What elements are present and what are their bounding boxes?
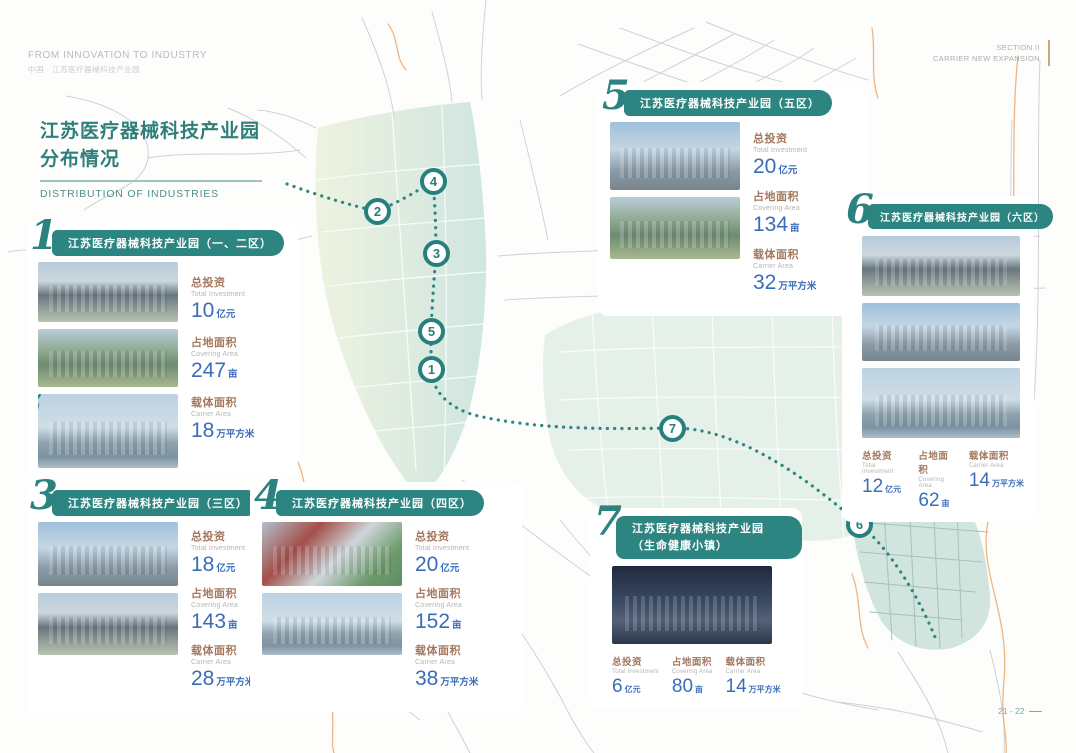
- card-header: 1 江苏医疗器械科技产业园（一、二区）: [38, 230, 288, 254]
- stat-sublabel-area: Covering Area: [191, 351, 279, 358]
- park-stats: 总投资 Total Investment 12亿元 占地面积 Covering …: [862, 448, 1024, 512]
- park-index-numeral: 5: [602, 76, 630, 116]
- park-card-zone-4: 4 江苏医疗器械科技产业园（四区） 总投资 Total Investment 2…: [250, 482, 522, 712]
- park-title-pill: 江苏医疗器械科技产业园（生命健康小镇）: [616, 516, 802, 559]
- stat-label-investment: 总投资: [415, 528, 503, 544]
- investment-value: 10: [191, 299, 214, 322]
- park-stats: 总投资 Total Investment 20亿元 占地面积 Covering …: [415, 522, 503, 702]
- carrier-value: 32: [753, 271, 776, 294]
- park-photo: [862, 236, 1020, 296]
- park-photos: [610, 122, 740, 306]
- park-photos: [38, 522, 178, 702]
- page-number-text: 21 - 22: [998, 706, 1024, 716]
- header-park-name: 中国 · 江苏医疗器械科技产业园: [28, 64, 207, 75]
- area-unit: 亩: [228, 620, 238, 631]
- map-marker-5: 5: [418, 318, 445, 345]
- park-photos: [862, 236, 1020, 438]
- page-number-dash: [1029, 711, 1042, 712]
- area-unit: 亩: [228, 369, 238, 380]
- carrier-unit: 万平方米: [440, 677, 478, 688]
- investment-value: 20: [753, 155, 776, 178]
- park-title-pill: 江苏医疗器械科技产业园（一、二区）: [52, 230, 284, 256]
- investment-value: 20: [415, 553, 438, 576]
- park-photos: 2: [38, 262, 178, 468]
- carrier-value: 18: [191, 419, 214, 442]
- stat-sublabel-carrier: Carrier Area: [415, 659, 503, 666]
- carrier-value: 28: [191, 667, 214, 690]
- area-value: 143: [191, 610, 226, 633]
- park-title-pill: 江苏医疗器械科技产业园（三区）: [52, 490, 260, 516]
- stat-sublabel-carrier: Carrier Area: [969, 463, 1024, 469]
- stat-label-area: 占地面积: [918, 448, 956, 476]
- area-value: 80: [672, 676, 693, 697]
- park-photo: [610, 122, 740, 190]
- carrier-unit: 万平方米: [216, 429, 254, 440]
- park-title-pill: 江苏医疗器械科技产业园（四区）: [276, 490, 484, 516]
- brochure-page: FROM INNOVATION TO INDUSTRY 中国 · 江苏医疗器械科…: [0, 0, 1076, 753]
- investment-value: 6: [612, 676, 623, 697]
- area-value: 134: [753, 213, 788, 236]
- investment-unit: 亿元: [778, 165, 797, 176]
- stat-sublabel-area: Covering Area: [918, 477, 956, 489]
- stat-label-investment: 总投资: [862, 448, 906, 462]
- park-photo: [38, 262, 178, 322]
- park-card-zone-1-2: 1 江苏医疗器械科技产业园（一、二区） 2 总投资 Total Investme…: [26, 222, 298, 478]
- carrier-value: 14: [969, 470, 990, 491]
- map-marker-3: 3: [423, 240, 450, 267]
- page-title-block: 江苏医疗器械科技产业园 分布情况 DISTRIBUTION OF INDUSTR…: [40, 118, 270, 200]
- stat-sublabel-area: Covering Area: [753, 205, 841, 212]
- carrier-unit: 万平方米: [992, 479, 1024, 488]
- stat-label-area: 占地面积: [753, 188, 841, 204]
- park-title-pill: 江苏医疗器械科技产业园（六区）: [868, 204, 1053, 229]
- stat-label-carrier: 载体面积: [726, 654, 781, 668]
- stat-sublabel-investment: Total Investment: [415, 545, 503, 552]
- park-photo: [862, 303, 1020, 361]
- park-photo: [862, 368, 1020, 438]
- stat-sublabel-carrier: Carrier Area: [726, 669, 781, 675]
- park-photo: [38, 522, 178, 586]
- stat-label-carrier: 载体面积: [191, 394, 279, 410]
- area-value: 62: [918, 490, 939, 511]
- section-subtitle: CARRIER NEW EXPANSION: [933, 54, 1040, 63]
- park-title-pill: 江苏医疗器械科技产业园（五区）: [624, 90, 832, 116]
- park-photos: [612, 566, 772, 644]
- park-card-zone-6: 6 江苏医疗器械科技产业园（六区） 总投资 Total Investment 1…: [842, 196, 1034, 522]
- carrier-value: 38: [415, 667, 438, 690]
- map-district-central: [316, 102, 487, 498]
- map-marker-7: 7: [659, 415, 686, 442]
- header-slogan: FROM INNOVATION TO INDUSTRY: [28, 50, 207, 61]
- page-header-left: FROM INNOVATION TO INDUSTRY 中国 · 江苏医疗器械科…: [28, 50, 207, 75]
- park-stats: 总投资 Total Investment 20亿元 占地面积 Covering …: [753, 122, 841, 306]
- page-title-line2: 分布情况: [40, 146, 270, 174]
- park-title-line1: 江苏医疗器械科技产业园: [632, 523, 764, 535]
- map-marker-1: 1: [418, 356, 445, 383]
- page-number: 21 - 22: [998, 706, 1042, 716]
- park-index-numeral: 6: [846, 190, 874, 230]
- stat-label-investment: 总投资: [612, 654, 659, 668]
- stat-sublabel-investment: Total Investment: [191, 291, 279, 298]
- park-card-life-health-town: 7 江苏医疗器械科技产业园（生命健康小镇） 总投资 Total Investme…: [590, 508, 802, 708]
- stat-sublabel-area: Covering Area: [415, 602, 503, 609]
- park-index-numeral: 7: [594, 502, 622, 542]
- investment-unit: 亿元: [216, 309, 235, 320]
- stat-label-carrier: 载体面积: [415, 642, 503, 658]
- park-photo: [262, 593, 402, 655]
- park-stats: 总投资 Total Investment 10亿元 占地面积 Covering …: [191, 262, 279, 468]
- section-label: SECTION II: [933, 43, 1040, 52]
- investment-value: 18: [191, 553, 214, 576]
- park-index-numeral: 4: [254, 476, 282, 516]
- park-photo: 2: [38, 394, 178, 468]
- carrier-value: 14: [726, 676, 747, 697]
- park-index-numeral: 1: [30, 216, 58, 256]
- area-unit: 亩: [942, 499, 950, 508]
- investment-unit: 亿元: [625, 685, 641, 694]
- page-title-line1: 江苏医疗器械科技产业园: [40, 118, 270, 146]
- stat-label-investment: 总投资: [191, 274, 279, 290]
- stat-label-area: 占地面积: [191, 334, 279, 350]
- park-stats: 总投资 Total Investment 6亿元 占地面积 Covering A…: [612, 654, 792, 698]
- map-marker-4: 4: [420, 168, 447, 195]
- investment-unit: 亿元: [440, 563, 459, 574]
- stat-sublabel-investment: Total Investment: [862, 463, 906, 475]
- card-header: 4 江苏医疗器械科技产业园（四区）: [262, 490, 512, 514]
- page-header-right: SECTION II CARRIER NEW EXPANSION: [933, 40, 1050, 66]
- stat-sublabel-area: Covering Area: [672, 669, 713, 675]
- area-unit: 亩: [452, 620, 462, 631]
- park-photos: [262, 522, 402, 702]
- carrier-unit: 万平方米: [749, 685, 781, 694]
- stat-label-area: 占地面积: [672, 654, 713, 668]
- park-photo: [612, 566, 772, 644]
- park-photo: [38, 593, 178, 655]
- map-marker-2: 2: [364, 198, 391, 225]
- stat-label-carrier: 载体面积: [969, 448, 1024, 462]
- park-card-zone-5: 5 江苏医疗器械科技产业园（五区） 总投资 Total Investment 2…: [598, 82, 870, 316]
- carrier-unit: 万平方米: [216, 677, 254, 688]
- park-photo: [610, 197, 740, 259]
- park-index-numeral-2: 2: [38, 394, 43, 416]
- stat-label-investment: 总投资: [753, 130, 841, 146]
- park-title-line2: （生命健康小镇）: [632, 540, 728, 552]
- stat-sublabel-carrier: Carrier Area: [753, 263, 841, 270]
- card-header: 7 江苏医疗器械科技产业园（生命健康小镇）: [602, 516, 792, 558]
- area-unit: 亩: [790, 223, 800, 234]
- page-subtitle: DISTRIBUTION OF INDUSTRIES: [40, 188, 270, 200]
- title-rule: [40, 180, 262, 182]
- investment-unit: 亿元: [885, 485, 901, 494]
- card-header: 6 江苏医疗器械科技产业园（六区）: [854, 204, 1024, 228]
- stat-sublabel-investment: Total Investment: [753, 147, 841, 154]
- park-index-numeral: 3: [30, 476, 58, 516]
- carrier-unit: 万平方米: [778, 281, 816, 292]
- investment-value: 12: [862, 476, 883, 497]
- area-unit: 亩: [695, 685, 703, 694]
- card-header: 5 江苏医疗器械科技产业园（五区）: [610, 90, 860, 114]
- area-value: 247: [191, 359, 226, 382]
- stat-sublabel-investment: Total Investment: [612, 669, 659, 675]
- stat-label-area: 占地面积: [415, 585, 503, 601]
- park-photo: [262, 522, 402, 586]
- investment-unit: 亿元: [216, 563, 235, 574]
- stat-label-carrier: 载体面积: [753, 246, 841, 262]
- area-value: 152: [415, 610, 450, 633]
- park-photo: [38, 329, 178, 387]
- stat-sublabel-carrier: Carrier Area: [191, 411, 279, 418]
